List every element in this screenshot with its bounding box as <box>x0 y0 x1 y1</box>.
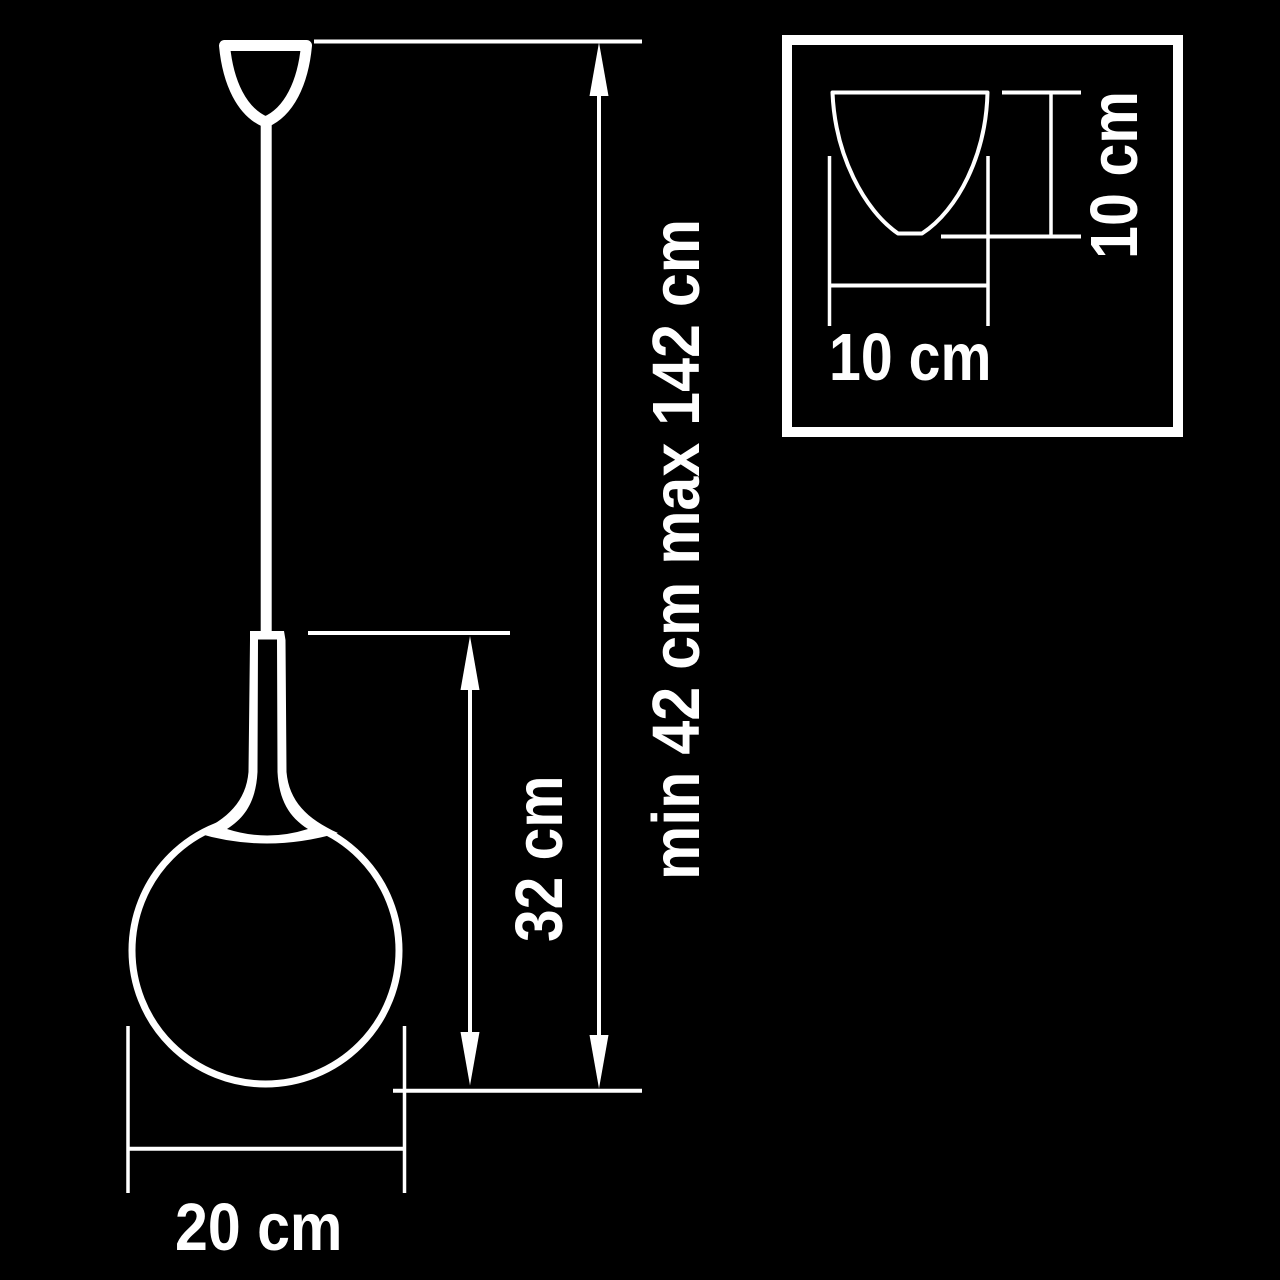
svg-text:20 cm: 20 cm <box>175 1190 342 1265</box>
svg-text:10 cm: 10 cm <box>1077 91 1152 259</box>
svg-text:min 42 cm max 142 cm: min 42 cm max 142 cm <box>639 219 714 880</box>
svg-text:10 cm: 10 cm <box>829 320 991 395</box>
svg-text:32 cm: 32 cm <box>502 776 577 943</box>
